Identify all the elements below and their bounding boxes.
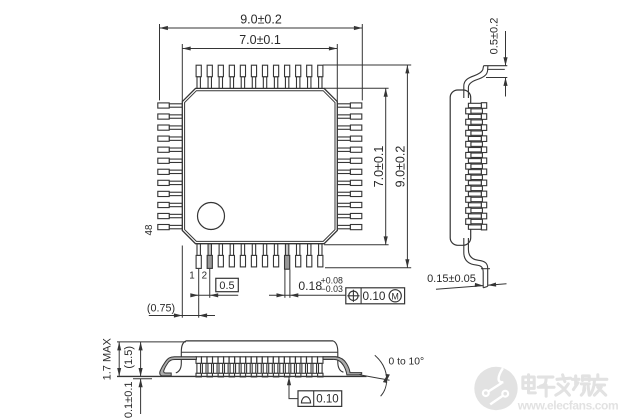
svg-text:7.0±0.1: 7.0±0.1 bbox=[372, 146, 386, 188]
svg-text:−0.03: −0.03 bbox=[321, 284, 343, 294]
svg-text:1: 1 bbox=[189, 271, 194, 282]
svg-text:0.18: 0.18 bbox=[298, 279, 322, 293]
svg-text:M: M bbox=[392, 292, 399, 302]
svg-text:(0.75): (0.75) bbox=[147, 303, 175, 315]
svg-text:1.7 MAX: 1.7 MAX bbox=[102, 338, 114, 381]
svg-text:7.0±0.1: 7.0±0.1 bbox=[239, 33, 281, 47]
svg-text:0.5±0.2: 0.5±0.2 bbox=[489, 18, 501, 55]
svg-text:0 to 10°: 0 to 10° bbox=[389, 357, 425, 368]
svg-text:0.10: 0.10 bbox=[316, 394, 338, 406]
svg-text:0.1±0.1: 0.1±0.1 bbox=[123, 381, 135, 418]
svg-text:9.0±0.2: 9.0±0.2 bbox=[394, 146, 408, 188]
svg-text:48: 48 bbox=[144, 224, 155, 235]
svg-text:0.10: 0.10 bbox=[363, 289, 386, 303]
svg-text:9.0±0.2: 9.0±0.2 bbox=[240, 13, 282, 27]
svg-text:2: 2 bbox=[202, 271, 207, 282]
svg-text:0.5: 0.5 bbox=[219, 280, 234, 292]
svg-text:(1.5): (1.5) bbox=[123, 346, 135, 369]
svg-text:www.elecfans.com: www.elecfans.com bbox=[517, 399, 619, 413]
svg-text:0.15±0.05: 0.15±0.05 bbox=[427, 273, 476, 285]
